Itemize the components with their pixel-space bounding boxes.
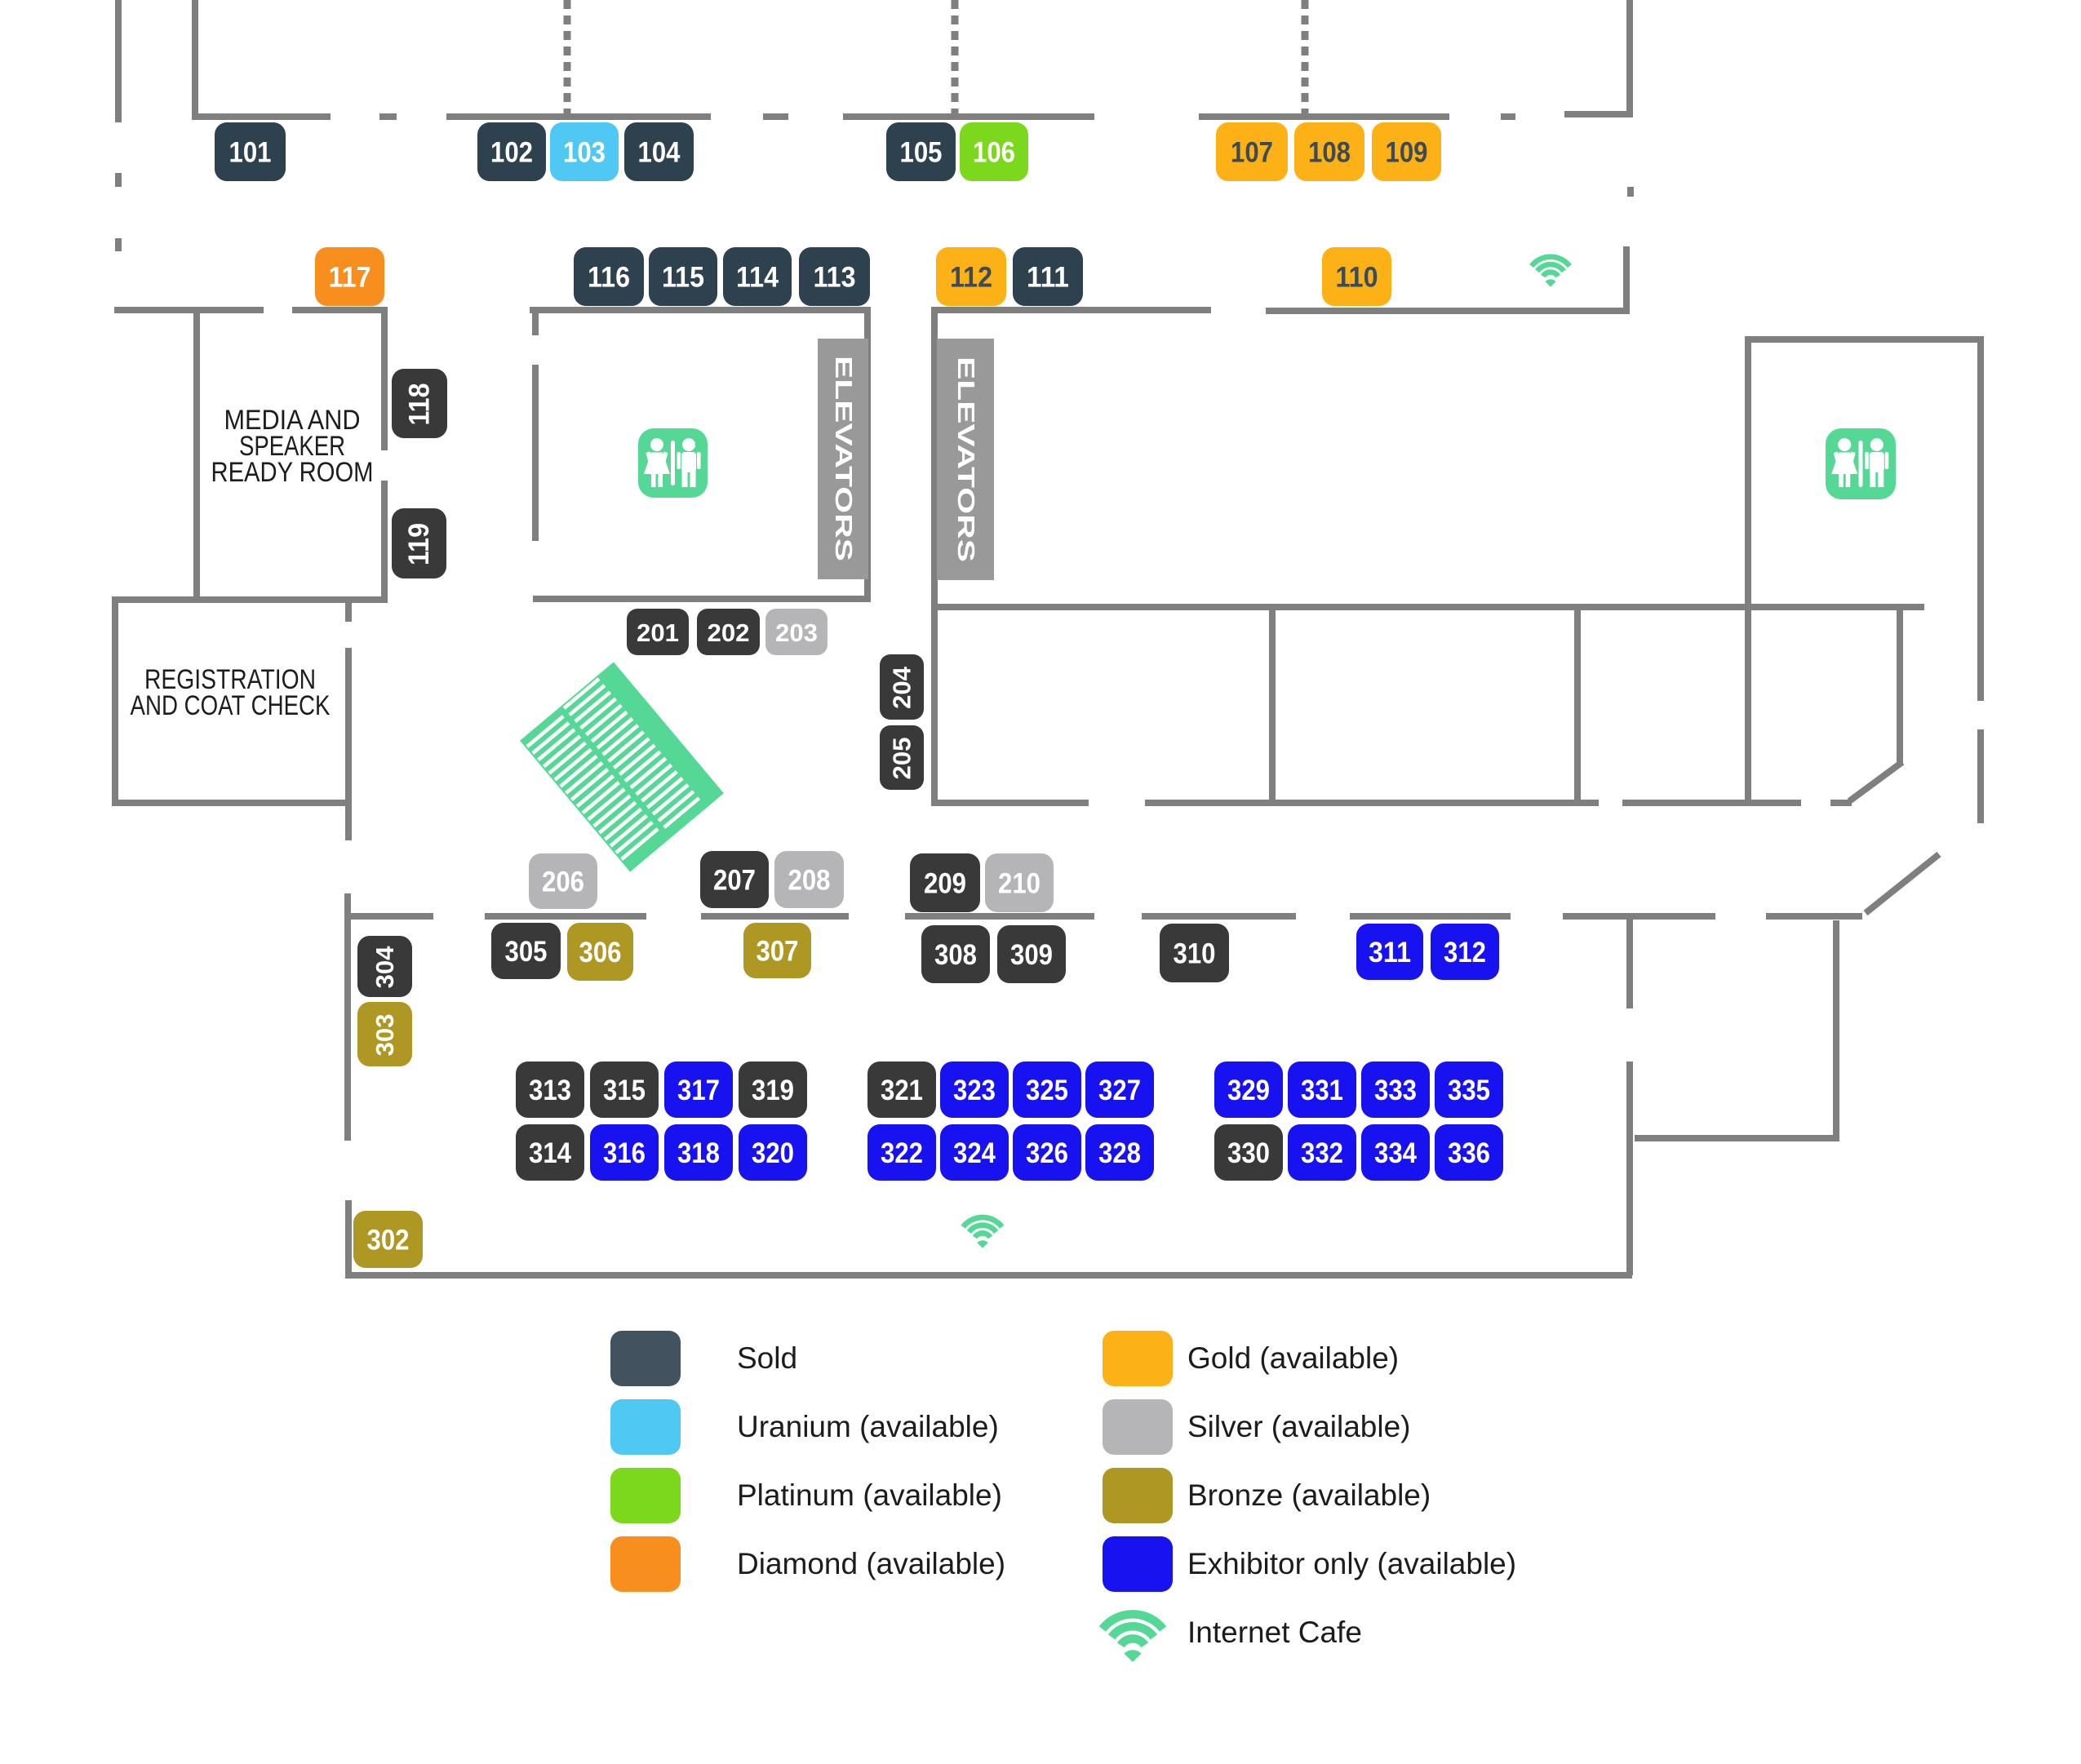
svg-text:310: 310 bbox=[1174, 938, 1216, 970]
svg-text:303: 303 bbox=[370, 1014, 399, 1057]
svg-text:328: 328 bbox=[1098, 1137, 1141, 1169]
svg-text:309: 309 bbox=[1010, 939, 1053, 971]
svg-text:116: 116 bbox=[588, 262, 630, 294]
svg-text:112: 112 bbox=[950, 262, 992, 294]
svg-text:102: 102 bbox=[490, 137, 533, 169]
svg-text:110: 110 bbox=[1336, 262, 1378, 294]
svg-text:312: 312 bbox=[1444, 937, 1486, 968]
svg-text:304: 304 bbox=[370, 946, 399, 989]
svg-text:107: 107 bbox=[1231, 137, 1273, 169]
svg-text:333: 333 bbox=[1374, 1075, 1417, 1106]
svg-text:322: 322 bbox=[881, 1137, 923, 1169]
svg-text:201: 201 bbox=[637, 618, 679, 647]
svg-text:317: 317 bbox=[677, 1075, 720, 1106]
svg-text:105: 105 bbox=[900, 137, 943, 169]
svg-text:117: 117 bbox=[329, 262, 371, 294]
svg-text:210: 210 bbox=[998, 868, 1040, 900]
svg-text:314: 314 bbox=[529, 1137, 571, 1169]
svg-text:Internet Cafe: Internet Cafe bbox=[1187, 1616, 1362, 1649]
svg-text:335: 335 bbox=[1448, 1075, 1490, 1106]
svg-text:Exhibitor only (available): Exhibitor only (available) bbox=[1187, 1547, 1516, 1580]
svg-text:320: 320 bbox=[752, 1137, 794, 1169]
svg-text:307: 307 bbox=[757, 936, 799, 968]
svg-text:106: 106 bbox=[973, 137, 1015, 169]
svg-text:313: 313 bbox=[529, 1075, 571, 1106]
svg-text:306: 306 bbox=[579, 937, 622, 968]
svg-text:103: 103 bbox=[563, 137, 606, 169]
svg-text:308: 308 bbox=[934, 939, 977, 971]
svg-text:118: 118 bbox=[404, 383, 436, 426]
svg-text:302: 302 bbox=[367, 1225, 410, 1257]
svg-text:Sold: Sold bbox=[737, 1341, 797, 1375]
svg-text:Platinum (available): Platinum (available) bbox=[737, 1478, 1002, 1512]
svg-text:316: 316 bbox=[603, 1137, 646, 1169]
svg-text:108: 108 bbox=[1308, 137, 1351, 169]
svg-text:114: 114 bbox=[736, 262, 779, 294]
svg-text:321: 321 bbox=[881, 1075, 923, 1106]
svg-text:109: 109 bbox=[1386, 137, 1428, 169]
svg-text:323: 323 bbox=[953, 1075, 996, 1106]
svg-text:209: 209 bbox=[924, 868, 966, 900]
svg-text:332: 332 bbox=[1301, 1137, 1343, 1169]
svg-text:318: 318 bbox=[677, 1137, 720, 1169]
svg-text:324: 324 bbox=[953, 1137, 996, 1169]
svg-text:115: 115 bbox=[662, 262, 704, 294]
svg-text:Uranium (available): Uranium (available) bbox=[737, 1410, 999, 1443]
svg-text:319: 319 bbox=[752, 1075, 794, 1106]
svg-text:205: 205 bbox=[888, 738, 916, 780]
svg-text:AND COAT CHECK: AND COAT CHECK bbox=[131, 690, 331, 721]
svg-text:Gold (available): Gold (available) bbox=[1187, 1341, 1399, 1375]
svg-text:ELEVATORS: ELEVATORS bbox=[952, 357, 978, 562]
svg-text:336: 336 bbox=[1448, 1137, 1490, 1169]
svg-text:119: 119 bbox=[403, 523, 435, 565]
svg-text:Diamond (available): Diamond (available) bbox=[737, 1547, 1005, 1580]
svg-text:327: 327 bbox=[1098, 1075, 1141, 1106]
svg-text:315: 315 bbox=[603, 1075, 646, 1106]
svg-text:331: 331 bbox=[1301, 1075, 1343, 1106]
svg-text:204: 204 bbox=[888, 666, 916, 709]
svg-text:329: 329 bbox=[1227, 1075, 1270, 1106]
svg-text:Silver (available): Silver (available) bbox=[1187, 1410, 1411, 1443]
svg-text:330: 330 bbox=[1227, 1137, 1270, 1169]
svg-text:111: 111 bbox=[1027, 262, 1069, 294]
svg-text:203: 203 bbox=[775, 618, 818, 647]
svg-text:ELEVATORS: ELEVATORS bbox=[830, 356, 856, 561]
svg-text:Bronze (available): Bronze (available) bbox=[1187, 1478, 1431, 1512]
svg-text:326: 326 bbox=[1026, 1137, 1068, 1169]
svg-text:208: 208 bbox=[788, 865, 831, 897]
svg-text:325: 325 bbox=[1026, 1075, 1068, 1106]
svg-text:311: 311 bbox=[1369, 937, 1411, 968]
svg-text:206: 206 bbox=[542, 866, 584, 898]
svg-text:207: 207 bbox=[713, 865, 756, 897]
svg-text:READY ROOM: READY ROOM bbox=[211, 457, 374, 488]
svg-text:305: 305 bbox=[505, 936, 548, 968]
svg-text:113: 113 bbox=[814, 262, 856, 294]
svg-text:101: 101 bbox=[229, 137, 272, 169]
svg-text:334: 334 bbox=[1374, 1137, 1417, 1169]
svg-text:202: 202 bbox=[708, 618, 750, 647]
svg-text:104: 104 bbox=[638, 137, 681, 169]
